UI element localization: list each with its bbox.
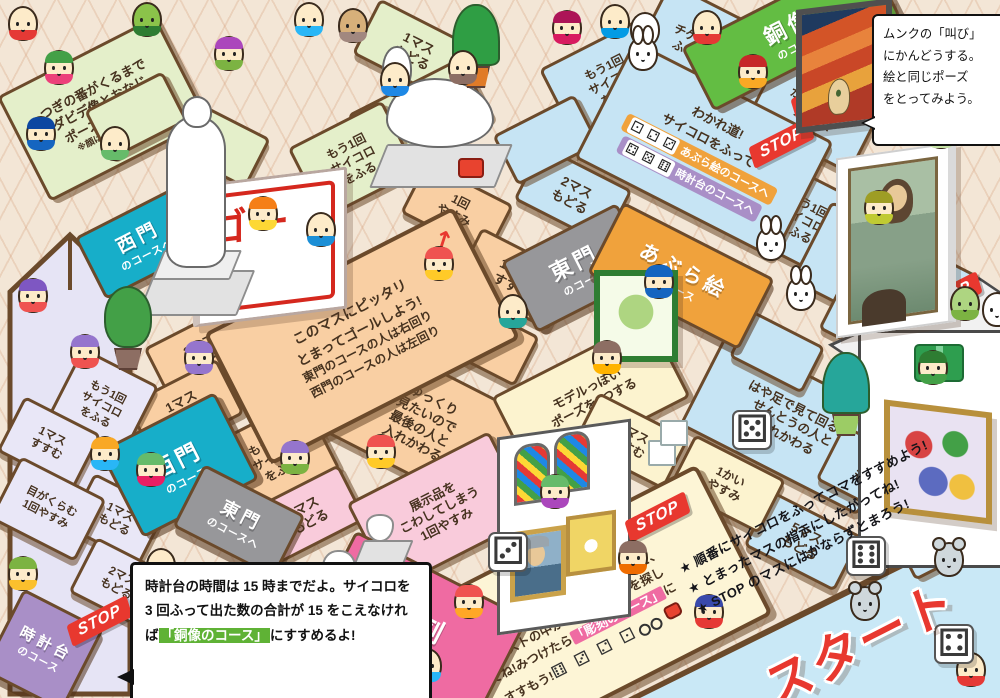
character bbox=[738, 54, 768, 89]
speech-bubble-tail bbox=[861, 116, 875, 130]
character bbox=[70, 334, 100, 369]
character bbox=[214, 36, 244, 71]
bronze-course-highlight: 「銅像のコース」 bbox=[159, 628, 270, 643]
tree bbox=[822, 352, 870, 436]
character bbox=[950, 286, 980, 321]
character bbox=[448, 50, 478, 85]
character bbox=[454, 584, 484, 619]
mona-lisa-painting bbox=[836, 142, 956, 339]
character bbox=[280, 440, 310, 475]
character bbox=[136, 452, 166, 487]
bubble-line: 絵と同じポーズ bbox=[883, 67, 1000, 89]
character bbox=[918, 350, 948, 385]
character bbox=[692, 10, 722, 45]
tree bbox=[104, 286, 152, 370]
museum-board-game: つぎの番がくるまでダビデ像とおなじポーズでいよう!※顔はきたままだよ1マスもどる… bbox=[0, 0, 1000, 698]
rabbit-character bbox=[756, 226, 786, 261]
character bbox=[294, 2, 324, 37]
info-box: 時計台の時間は 15 時までだよ。サイコロを 3 回ふって出た数の合計が 15 … bbox=[130, 562, 432, 698]
speech-bubble: ムンクの「叫び」 にかんどうする。 絵と同じポーズ をとってみよう。 bbox=[872, 14, 1000, 146]
die-icon: ⚄ bbox=[732, 410, 772, 450]
character bbox=[338, 8, 368, 43]
centaur-pedestal bbox=[369, 144, 513, 188]
character bbox=[306, 212, 336, 247]
gallery-wall bbox=[497, 419, 631, 636]
character bbox=[498, 294, 528, 329]
character bbox=[618, 540, 648, 575]
bubble-line: をとってみよう。 bbox=[883, 89, 1000, 111]
character bbox=[424, 246, 454, 281]
character bbox=[592, 340, 622, 375]
character bbox=[380, 62, 410, 97]
character bbox=[44, 50, 74, 85]
character bbox=[644, 264, 674, 299]
character bbox=[8, 6, 38, 41]
character bbox=[8, 556, 38, 591]
character bbox=[132, 2, 162, 37]
info-box-tail bbox=[117, 669, 134, 685]
die-icon: ⚂ bbox=[488, 532, 528, 572]
character bbox=[90, 436, 120, 471]
yellow-painting bbox=[566, 510, 616, 577]
bubble-line: にかんどうする。 bbox=[883, 46, 1000, 68]
info-text: にすすめるよ! bbox=[270, 628, 356, 643]
character bbox=[552, 10, 582, 45]
character bbox=[864, 190, 894, 225]
character bbox=[100, 126, 130, 161]
character bbox=[184, 340, 214, 375]
character bbox=[18, 278, 48, 313]
david-statue bbox=[166, 116, 226, 268]
red-bag bbox=[458, 158, 484, 178]
character bbox=[26, 116, 56, 151]
glasses-icon bbox=[642, 618, 658, 632]
cat-character bbox=[982, 292, 1000, 327]
purse-icon bbox=[662, 601, 684, 621]
scream-figure bbox=[828, 77, 850, 116]
rabbit-character bbox=[628, 36, 658, 71]
display-cube bbox=[660, 420, 688, 446]
character bbox=[600, 4, 630, 39]
character bbox=[248, 196, 278, 231]
character bbox=[366, 434, 396, 469]
rabbit-character bbox=[786, 276, 816, 311]
character bbox=[540, 474, 570, 509]
bubble-line: ムンクの「叫び」 bbox=[883, 24, 1000, 46]
